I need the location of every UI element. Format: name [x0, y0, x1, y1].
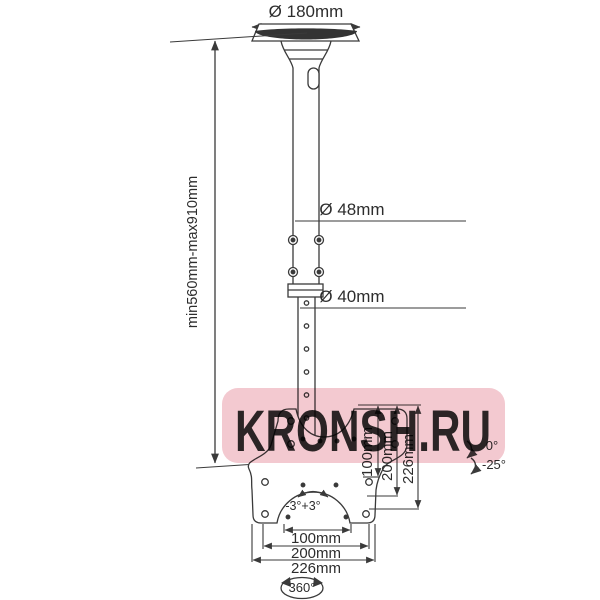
label-upper-pole-diameter: Ø 48mm — [319, 200, 384, 219]
label-height-range: min560mm-max910mm — [185, 176, 201, 328]
label-swivel: 360° — [289, 580, 316, 595]
tv-ceiling-mount-diagram: Ø 180mm Ø 48mm Ø 40mm min560mm-max910mm … — [0, 0, 600, 600]
neck-slot — [308, 68, 319, 89]
drawing-lines — [170, 24, 476, 599]
label-lower-pole-diameter: Ø 40mm — [319, 287, 384, 306]
label-horizontal-226mm: 226mm — [291, 560, 341, 577]
label-ceiling-diameter: Ø 180mm — [269, 2, 344, 21]
diagram-svg: Ø 180mm Ø 48mm Ø 40mm min560mm-max910mm … — [0, 0, 600, 600]
watermark-text: KRONSH.RU — [235, 399, 491, 464]
upper-pole — [288, 88, 466, 297]
watermark: KRONSH.RU — [222, 388, 505, 464]
ceiling-plate — [252, 24, 359, 89]
label-level-adjustment: -3°+3° — [285, 499, 320, 513]
locking-screws — [289, 236, 324, 277]
